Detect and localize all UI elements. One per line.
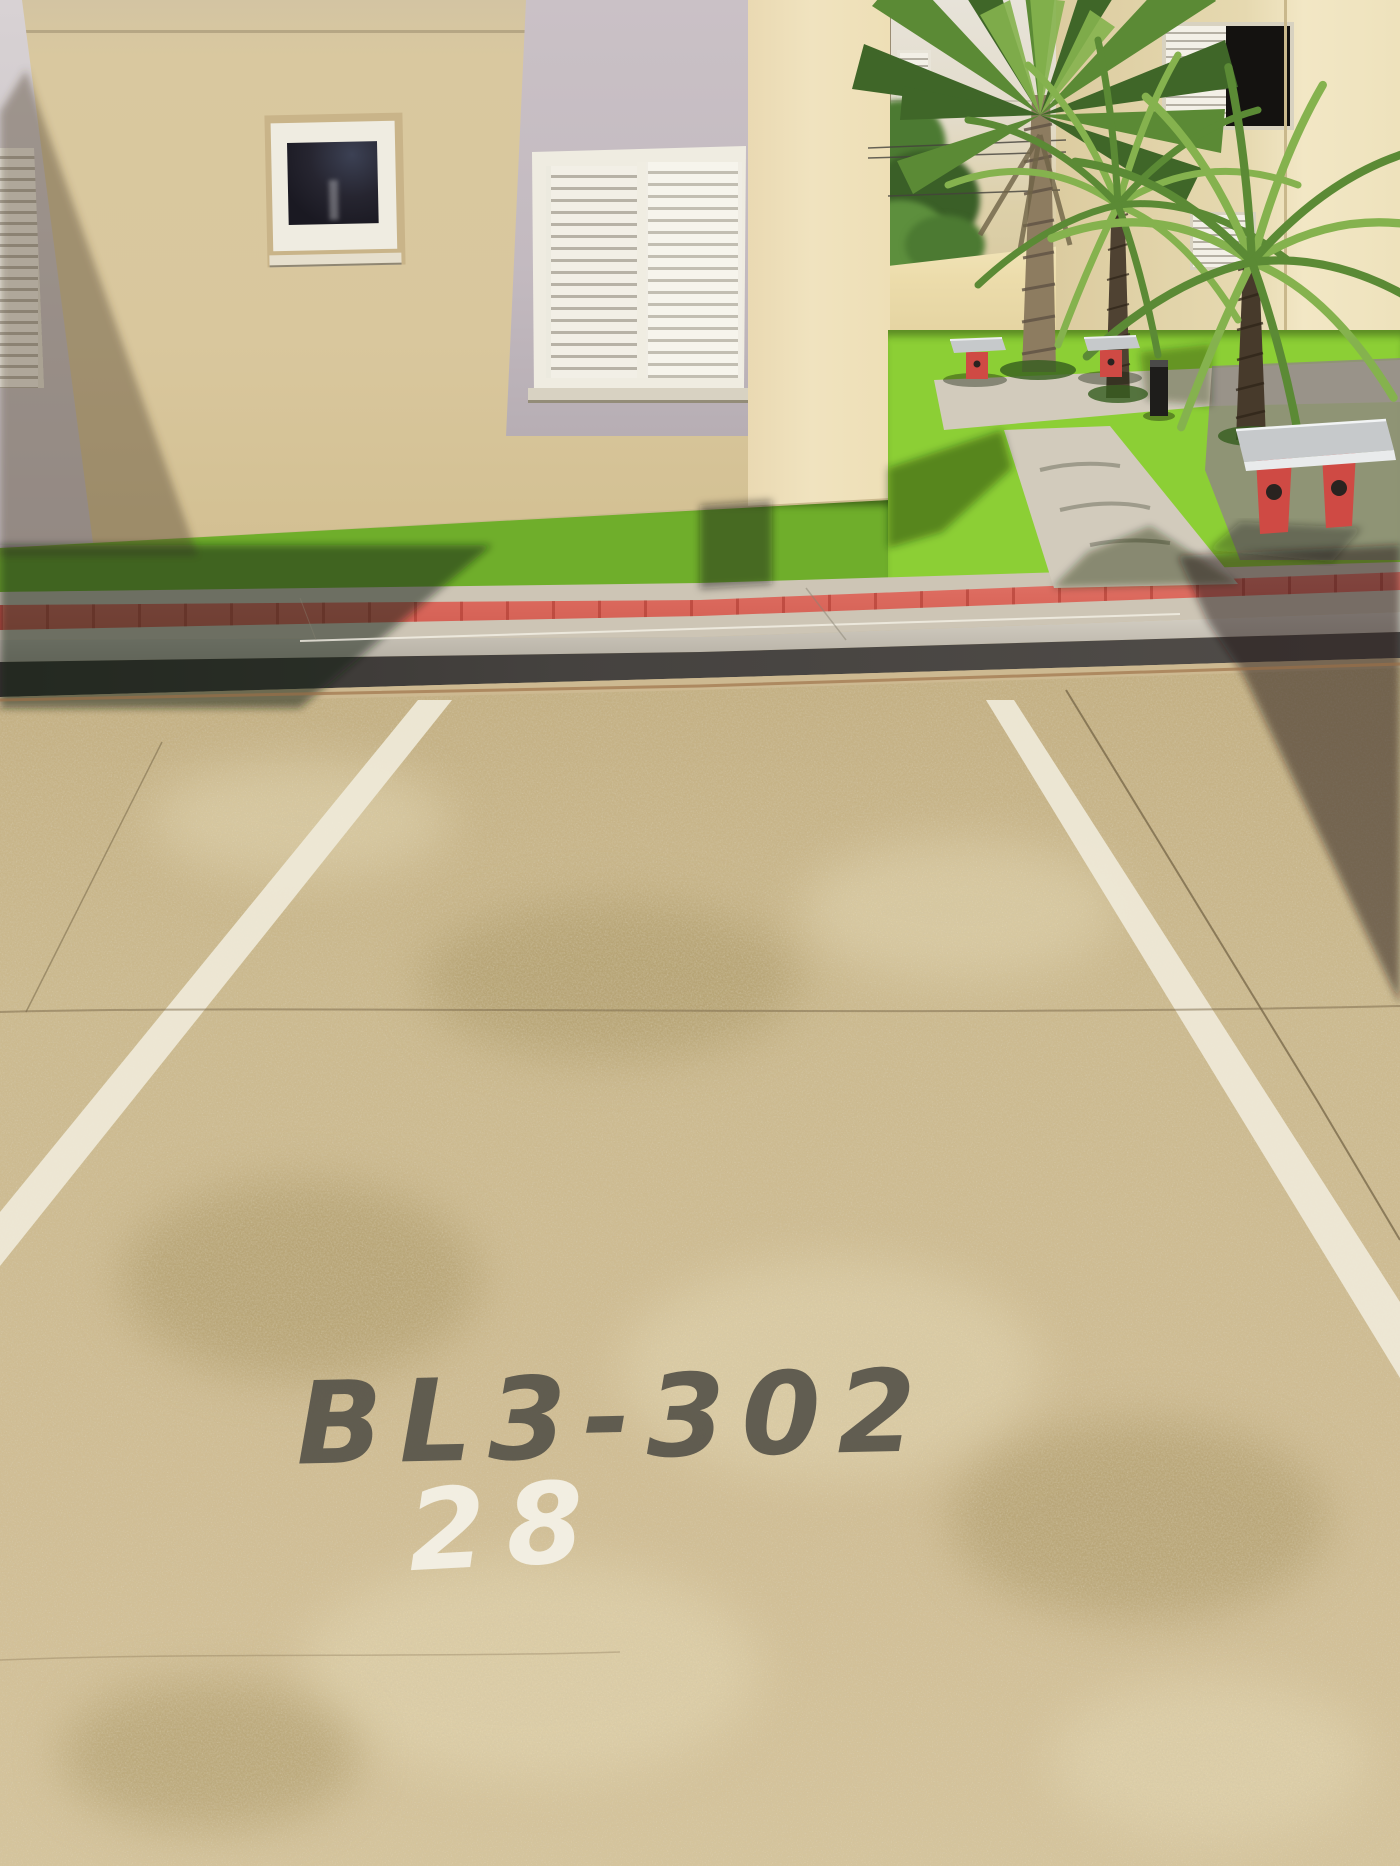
small-dark-window [264,113,405,268]
window-sill [528,388,752,403]
pavement-mottle [120,1180,480,1380]
parking-space-photo: BL3-302 28 [0,0,1400,1866]
window-reflection-streak [329,180,339,220]
right-building [1056,0,1400,370]
right-building-louver-shutter [1166,26,1226,126]
pavement-mottle [150,760,450,880]
small-window-sill [269,253,401,268]
pavement-mottle [1050,1680,1370,1840]
small-window-frame [271,121,398,252]
main-building-facade [0,0,890,570]
pavement-mottle [300,1560,760,1780]
pavement-mottle [800,840,1120,980]
louver-sash-right [644,162,742,378]
louver-shutter-frame [38,148,44,388]
louver-shutter-partial [0,148,44,388]
pavement-mottle [60,1680,360,1830]
louver-center-stile [637,162,646,378]
building-corner-column [748,0,893,556]
large-louver-shutter-window [532,146,746,394]
facade-lavender-panel-left [0,0,96,566]
background-building-louver-window [897,50,931,98]
right-building-pillar-edge [1284,0,1287,370]
small-window-glass [287,141,379,225]
stencil-space-number: 28 [405,1457,607,1597]
background-building-floor-line [891,100,1069,102]
right-building-window-opening [1162,22,1294,130]
right-building-lower-louver-window [1190,212,1256,270]
parking-pavement [0,655,1400,1866]
garden-lawn [888,330,1400,592]
louver-sash-left [546,166,650,378]
stencil-unit-label: BL3-302 [295,1342,1018,1490]
pavement-mottle [420,900,800,1060]
